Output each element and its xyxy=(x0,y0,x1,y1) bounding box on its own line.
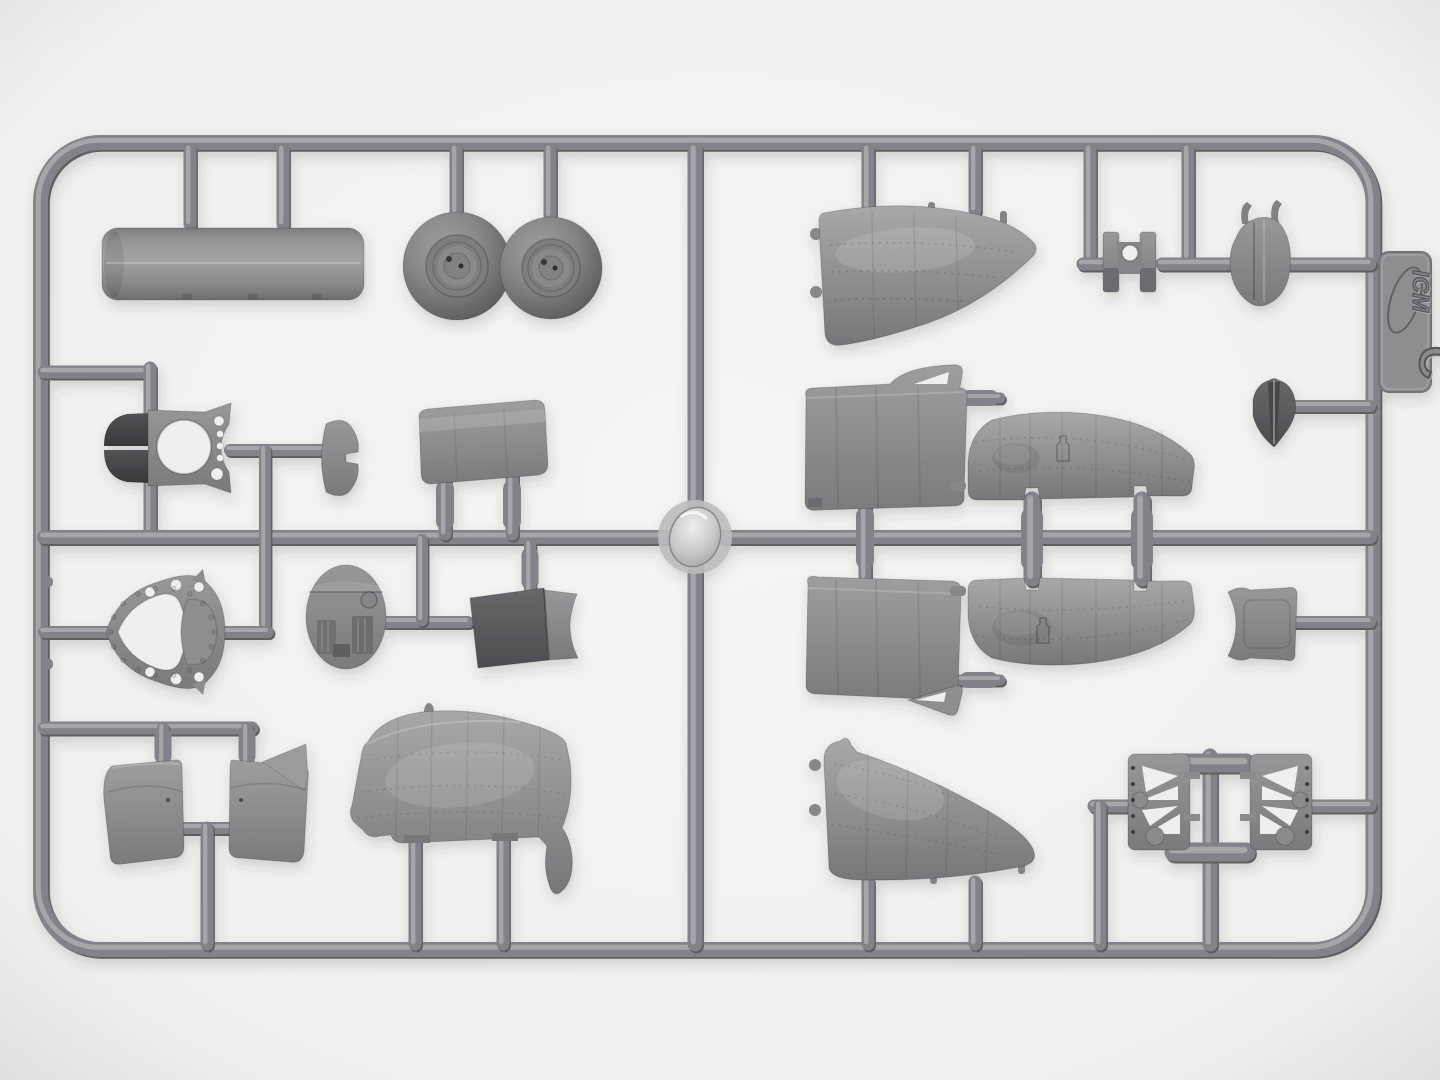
photo-vignette xyxy=(0,0,1440,1080)
photo-of-model-kit-sprue: ICM ICM C C xyxy=(0,0,1440,1080)
